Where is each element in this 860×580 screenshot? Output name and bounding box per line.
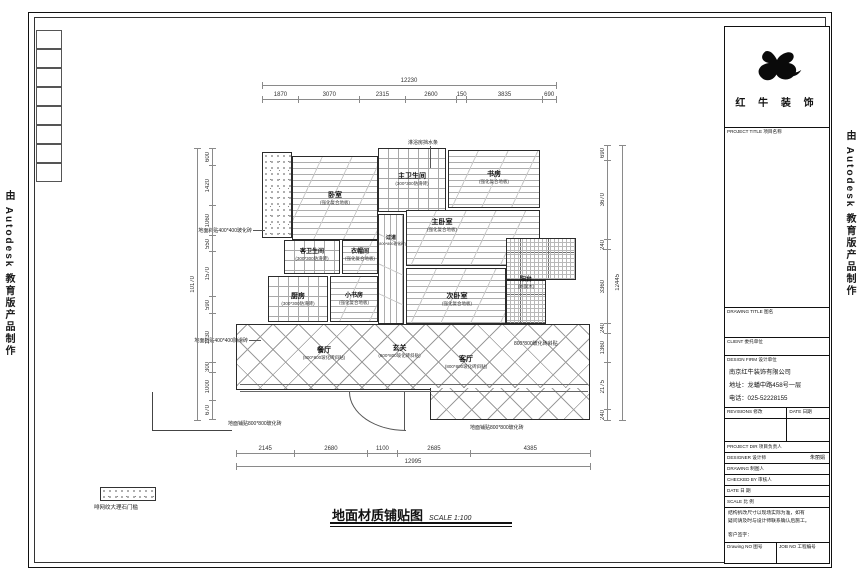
annotation-bottom-b: 地面铺贴800*800玻化砖 [470,424,524,431]
design-firm-label: DESIGN FIRM 设计单位 [725,356,829,364]
leader-line [430,146,431,168]
room-corridor [378,214,404,324]
room-label-guest-bath: 客卫生间 (300*300防滑砖) [283,249,341,261]
client-section: CLIENT 委托单位 [725,337,829,355]
entry-door-swing [349,392,406,431]
room-label-dining: 餐厅 (800*800玻化砖斜贴) [294,347,354,360]
dim-right-total: 12445 [613,145,623,420]
company-name: 南京红牛装饰有限公司 [729,366,825,379]
logo-box: 红 牛 装 饰 [725,27,829,127]
entry-wall [152,430,232,431]
drawing-title-section: DRAWING TITLE 图名 [725,307,829,337]
row-checked-by: CHECKED BY 审核人 [725,474,829,485]
dim-left-segments: 600 1420 1060 550 1570 590 1730 300 1000… [203,148,213,420]
project-title-label: PROJECT TITLE 项目名称 [725,127,829,136]
room-label-kitchen: 厨房 (300*300防滑砖) [268,293,328,306]
room-label-study: 书房 (强化复合地板) [464,171,524,184]
note-line-1: 结构拆改尺寸以现场实际为准，如有 [728,510,826,518]
annotation-left-a: 地面斜贴400*400玻化砖 [152,227,252,234]
dim-bottom-total: 12995 [236,457,590,467]
row-date: DATE 日 期 [725,485,829,496]
room-label-living: 客厅 (800*800玻化砖斜贴) [436,356,496,369]
annotation-right-a: 800*800玻化砖斜贴 [514,340,558,347]
title-underline [330,522,512,524]
row-project-dir: PROJECT DIR 项目负责人 [725,441,829,452]
company-address: 地址：龙蟠中路458号一层 [729,379,825,392]
drawing-title-label: DRAWING TITLE 图名 [725,308,829,316]
company-phone: 电话：025-52228155 [729,392,825,405]
cad-sheet: 由 Autodesk 教育版产品制作 由 Autodesk 教育版产品制作 [0,0,860,580]
dim-left-total: 10170 [188,148,198,420]
annotation-bottom-a: 地面铺贴800*800玻化砖 [228,420,282,427]
leader-line [253,230,265,231]
sheet-scale: SCALE 1:100 [429,515,471,522]
client-label: CLIENT 委托单位 [725,338,829,346]
client-sign-label: 客户签字： [728,532,826,540]
drawing-number-row: Drawing NO 图号 JOB NO 工程编号 [725,542,829,563]
legend-threshold-swatch [100,487,156,501]
revisions-label: REVISIONS 修改 [725,408,787,418]
room-label-foyer: 玄关 (800*800玻化砖斜贴) [372,345,427,358]
row-scale: SCALE 比 例 [725,496,829,507]
design-firm-section: DESIGN FIRM 设计单位 南京红牛装饰有限公司 地址：龙蟠中路458号一… [725,355,829,407]
dim-top-segments: 1870 3070 2315 2600 150 3835 690 [262,90,556,100]
entry-door-leaf [404,392,405,430]
drawing-no-label: Drawing NO 图号 [725,543,777,563]
dim-bottom-segments: 2145 2680 1100 2685 4385 [236,444,590,454]
room-label-small-study: 小书房 (强化复合地板) [330,293,378,305]
date-col-label: DATE 日期 [787,408,813,418]
job-no-label: JOB NO 工程编号 [777,543,829,563]
revisions-body [725,418,829,441]
room-living-extension [430,388,590,420]
room-balcony-upper [506,238,576,280]
leader-line [249,340,261,341]
room-label-second-bed: 次卧室 (强化复合地板) [427,293,487,306]
brand-name: 红 牛 装 饰 [735,94,818,109]
room-label-balcony: 阳台 (防腐木) [508,277,544,289]
room-label-corridor: 过道 (800*800玻化砖) [378,236,404,246]
project-title-space [725,136,829,307]
title-underline [330,526,512,527]
room-label-master-bed: 主卧室 (强化复合地板) [412,219,472,232]
note-line-2: 疑问请及时与设计师联系确认后施工。 [728,518,826,526]
dim-right-segments: 690 3670 240 3360 240 1360 2175 240 [598,145,608,420]
dim-top-total: 12230 [262,76,556,86]
designer-name: 朱丽娟 [810,454,829,461]
legend-label: 啡网纹大理石门槛 [94,503,138,511]
entry-wall [152,392,153,430]
revisions-header: REVISIONS 修改 DATE 日期 [725,407,829,418]
room-label-cloak: 衣帽间 (强化复合地板) [342,249,378,261]
annotation-left-b: 地面斜贴400*400防滑砖 [148,337,248,344]
row-designer: DESIGNER 设计师 朱丽娟 [725,452,829,463]
note-section: 结构拆改尺寸以现场实际为准，如有 疑问请及时与设计师联系确认后施工。 客户签字： [725,507,829,542]
annotation-shower-bar: 淋浴房挡水条 [408,139,438,146]
title-block: 红 牛 装 饰 PROJECT TITLE 项目名称 DRAWING TITLE… [724,26,830,564]
room-label-bedroom: 卧室 (强化复合地板) [305,192,365,205]
room-label-master-bath: 主卫生间 (300*300防滑砖) [382,173,442,186]
bull-logo-icon [748,46,806,88]
room-balcony-left [262,152,292,238]
row-drawing: DRAWING 制图人 [725,463,829,474]
window-band [240,384,588,392]
